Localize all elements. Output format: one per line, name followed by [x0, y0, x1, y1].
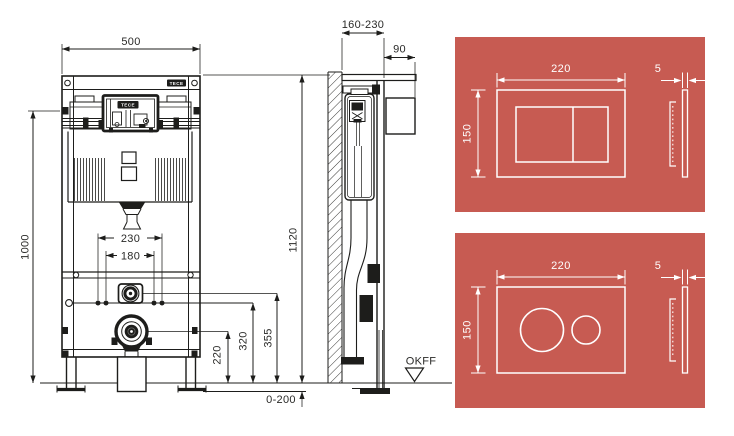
round-plate-panel-background: [455, 233, 705, 408]
dim-anchor-outer: 230: [121, 233, 140, 245]
wall-section: [328, 72, 342, 383]
frame-brand-label: TECE: [170, 81, 184, 86]
cistern-ribs-right: [156, 158, 186, 201]
dim-side-frame-height: 1120: [288, 228, 300, 253]
floor-level-label: OKFF: [406, 356, 437, 368]
technical-drawing-svg: TECE TECE: [0, 0, 734, 436]
dim-crossbar-height: 320: [238, 331, 250, 350]
flush-unit-box: TECE: [103, 96, 158, 133]
dim-plate-height: 150: [462, 320, 474, 340]
rect-plate-panel: 220 150 5: [455, 37, 709, 212]
side-cistern: [345, 89, 374, 200]
dim-frame-width: 500: [121, 36, 140, 48]
dim-anchor-inner: 180: [121, 250, 140, 262]
rect-plate-panel-background: [455, 37, 705, 212]
crossbar-and-fittings: [62, 272, 277, 306]
dim-plate-thickness: 5: [655, 260, 662, 272]
side-foot: [360, 389, 390, 394]
dim-foot-adjustment: 0-200: [266, 394, 296, 406]
level-triangle-icon: [406, 368, 424, 382]
dim-plate-height: 150: [462, 124, 474, 144]
side-view: 160-230 90 OKFF: [328, 19, 436, 394]
dim-depth-range: 160-230: [342, 19, 384, 31]
installation-frame-drawing: TECE TECE: [0, 0, 734, 436]
dim-plate-thickness: 5: [655, 63, 662, 75]
dim-drain-height: 220: [212, 345, 224, 364]
actuation-box: [386, 98, 415, 134]
dim-fixing-height: 1000: [20, 234, 32, 260]
cistern-ribs-left: [75, 158, 105, 201]
cistern-brand-label: TECE: [121, 103, 135, 108]
flush-plate-panels: 220 150 5 220 150: [455, 37, 709, 408]
round-plate-panel: 220 150 5: [455, 233, 709, 408]
floor-level-mark: OKFF: [406, 356, 437, 382]
cistern-body: [68, 132, 192, 230]
dim-plate-width: 220: [551, 63, 571, 75]
dim-water-inlet-height: 355: [263, 328, 275, 347]
dim-plate-width: 220: [551, 260, 571, 272]
brand-plate: TECE: [167, 80, 186, 87]
drain-outlet-box: [118, 357, 147, 392]
dim-cistern-offset: 90: [393, 44, 406, 56]
side-flush-pipe: [341, 200, 380, 365]
